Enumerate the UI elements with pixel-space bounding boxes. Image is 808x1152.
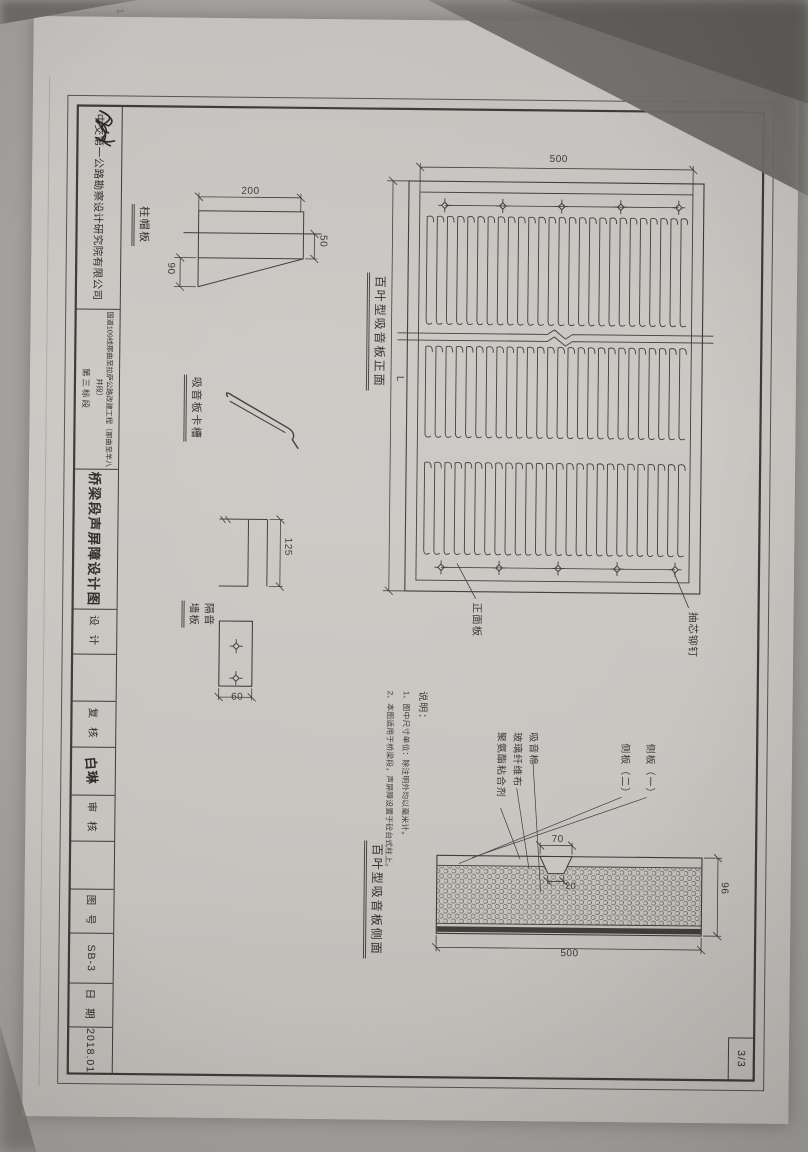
generated-line <box>464 462 471 554</box>
foam-hatch <box>437 866 702 926</box>
drawing-no-cell: SB-3 <box>69 933 114 983</box>
date-cell: 2018.01 <box>68 1027 112 1073</box>
side-dim-70: 70 <box>546 834 570 845</box>
generated-line <box>648 348 655 439</box>
generated-line <box>660 219 668 327</box>
generated-line <box>680 219 688 327</box>
generated-line <box>650 218 658 326</box>
generated-line <box>639 218 647 326</box>
generated-line <box>576 464 583 556</box>
detail-channel <box>219 515 285 591</box>
layer-label-foamtop: 吸音棉 <box>526 732 538 765</box>
generated-line <box>434 462 441 554</box>
front-view-louver-panel <box>383 163 716 608</box>
date-label-cell: 日 期 <box>68 983 112 1027</box>
page-number-box: 3/3 <box>728 1037 754 1080</box>
notes-block: 说明： 1、图中尺寸单位：除注明外均以毫米计。 2、本图适用于桥梁段，声屏障设置… <box>383 691 432 872</box>
channel-dim-125: 125 <box>282 538 293 556</box>
generated-line <box>599 218 607 326</box>
front-view-title: 百叶型吸音板正面 <box>366 273 389 391</box>
review-label-cell: 审 核 <box>70 795 114 841</box>
cap-plate-title: 柱帽板 <box>131 204 152 246</box>
drawing-paper: 3/3 500 L 正面板 抽芯铆钉 百叶型吸音板正面 200 50 90 柱帽… <box>22 16 799 1124</box>
generated-line <box>518 217 526 325</box>
generated-line <box>657 464 664 556</box>
generated-line <box>598 348 605 439</box>
generated-line <box>436 216 444 324</box>
generated-line <box>586 464 593 556</box>
plate-label-2: 侧板（二） <box>618 743 631 798</box>
drawing-no-label-cell: 图 号 <box>69 889 113 933</box>
generated-line <box>233 675 239 681</box>
generated-line <box>678 465 685 557</box>
layer-label-adhesive: 聚氨酯粘合剂 <box>494 732 507 798</box>
design-signature-cell <box>72 654 116 701</box>
layer-label-fiber: 玻璃纤维布 <box>510 732 523 787</box>
cap-dim-50: 50 <box>317 235 328 247</box>
break-line <box>397 335 713 347</box>
wall-panel-title: 隔音 墙板 <box>181 601 216 628</box>
generated-line <box>589 218 597 326</box>
generated-line <box>497 217 505 325</box>
clip-title: 吸音板卡槽 <box>183 375 205 442</box>
generated-line <box>233 643 239 649</box>
generated-line <box>444 462 451 554</box>
dim-500-lines <box>416 163 697 195</box>
generated-line <box>535 463 542 555</box>
sheet-frame <box>58 95 774 1090</box>
generated-line <box>578 218 586 326</box>
generated-line <box>629 218 637 326</box>
drawing-linework <box>52 89 780 1096</box>
generated-line <box>667 465 674 557</box>
side-dim-500: 500 <box>554 948 584 959</box>
generated-line <box>467 216 475 324</box>
generated-line <box>525 463 532 555</box>
generated-line <box>647 464 654 556</box>
generated-line <box>670 219 678 327</box>
note-item-2: 2、本图适用于桥梁段，声屏障设置于砼台式柱上。 <box>383 691 396 872</box>
side-dim-20: 20 <box>559 881 583 891</box>
generated-line <box>455 346 462 437</box>
front-dim-500: 500 <box>544 154 574 165</box>
generated-line <box>477 217 485 325</box>
generated-line <box>609 218 617 326</box>
generated-line <box>669 349 676 440</box>
generated-line <box>567 348 574 439</box>
generated-line <box>557 347 564 438</box>
rivet-label: 抽芯铆钉 <box>686 612 699 658</box>
generated-line <box>457 216 465 324</box>
generated-line <box>229 671 242 685</box>
generated-line <box>628 348 635 439</box>
generated-line <box>506 347 513 438</box>
generated-line <box>487 217 495 325</box>
checker-name: 白琳 <box>82 756 103 785</box>
front-dim-L: L <box>394 376 405 382</box>
generated-line <box>516 347 523 438</box>
generated-line <box>538 217 546 325</box>
generated-line <box>546 463 553 555</box>
generated-line <box>426 216 434 324</box>
plate-label-1: 侧板（一） <box>643 743 656 798</box>
photo-of-drawing: 3/3 500 L 正面板 抽芯铆钉 百叶型吸音板正面 200 50 90 柱帽… <box>0 0 808 1152</box>
generated-line <box>638 348 645 439</box>
generated-line <box>435 346 442 437</box>
generated-line <box>566 464 573 556</box>
checker-name-cell: 白琳 <box>71 747 116 795</box>
generated-line <box>537 347 544 438</box>
generated-line <box>526 347 533 438</box>
generated-line <box>466 346 473 437</box>
generated-line <box>607 464 614 556</box>
detail-cap-plate <box>174 193 322 293</box>
corner-mark: 1 <box>115 8 125 13</box>
side-dim-96: 96 <box>719 882 730 894</box>
note-item-1: 1、图中尺寸单位：除注明外均以毫米计。 <box>399 691 412 872</box>
cap-dim-90: 90 <box>165 262 176 274</box>
project-line1: 国道109线那曲至拉萨公路改建工程（那曲至羊八井段） <box>93 310 115 469</box>
detail-wall-panel <box>215 621 257 701</box>
front-panel-label: 正面板 <box>470 603 483 638</box>
generated-line <box>619 218 627 326</box>
generated-line <box>445 346 452 437</box>
generated-line <box>627 464 634 556</box>
generated-line <box>558 217 566 325</box>
project-line2: 第三标段 <box>80 368 92 410</box>
generated-line <box>596 464 603 556</box>
generated-line <box>547 347 554 438</box>
generated-line <box>424 462 431 554</box>
generated-line <box>495 463 502 555</box>
generated-line <box>679 349 686 440</box>
generated-line <box>608 348 615 439</box>
generated-line <box>568 218 576 326</box>
generated-line <box>587 348 594 439</box>
wall-panel-title-line2: 墙板 <box>186 603 201 626</box>
generated-line <box>230 639 243 653</box>
generated-line <box>556 463 563 555</box>
generated-line <box>515 463 522 555</box>
project-name-cell: 国道109线那曲至拉萨公路改建工程（那曲至羊八井段） 第三标段 <box>74 309 120 469</box>
generated-line <box>659 348 666 439</box>
break-line <box>397 328 713 340</box>
generated-line <box>505 463 512 555</box>
drawing-title-cell: 桥梁段声屏障设计图 <box>73 469 118 609</box>
paper-crease <box>39 76 51 1086</box>
generated-line <box>474 463 481 555</box>
leader-plate-1 <box>472 796 647 860</box>
generated-line <box>528 217 536 325</box>
generated-line <box>617 464 624 556</box>
wall-panel-title-line1: 隔音 <box>201 603 216 626</box>
drawing-sheet: 3/3 500 L 正面板 抽芯铆钉 百叶型吸音板正面 200 50 90 柱帽… <box>52 89 780 1096</box>
leader-plate-2 <box>459 796 622 866</box>
generated-line <box>507 217 515 325</box>
generated-line <box>496 347 503 438</box>
wall-panel-dim-60: 60 <box>224 692 250 703</box>
generated-line <box>548 217 556 325</box>
leader-rivet <box>674 573 689 608</box>
generated-line <box>425 346 432 437</box>
notes-heading: 说明： <box>415 691 432 872</box>
generated-line <box>476 347 483 438</box>
detail-clip <box>226 393 299 449</box>
check-label-cell: 复 核 <box>71 701 115 747</box>
generated-line <box>618 348 625 439</box>
generated-line <box>486 347 493 438</box>
cap-dim-200: 200 <box>235 186 265 197</box>
design-label-cell: 设 计 <box>72 609 116 654</box>
generated-line <box>446 216 454 324</box>
generated-line <box>637 464 644 556</box>
generated-line <box>577 348 584 439</box>
generated-line <box>485 463 492 555</box>
generated-line <box>454 462 461 554</box>
review-signature-cell <box>70 841 115 889</box>
side-view-section <box>432 761 723 954</box>
leader-layer-3 <box>500 808 521 859</box>
